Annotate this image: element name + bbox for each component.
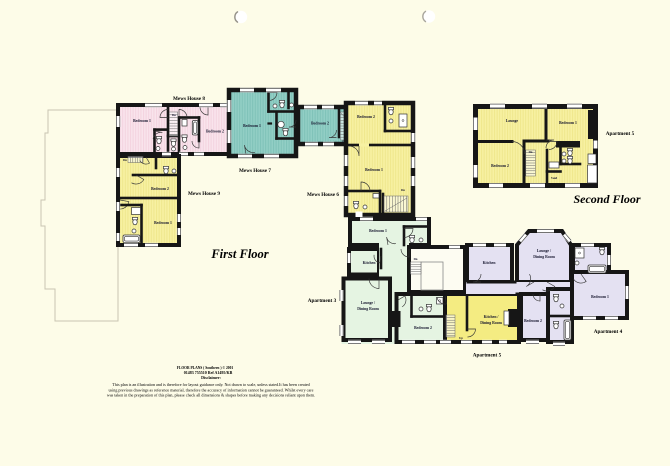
svg-text:Bedroom 2: Bedroom 2 (414, 326, 432, 330)
svg-text:Bedroom 2: Bedroom 2 (524, 319, 542, 323)
svg-text:Up: Up (459, 336, 463, 340)
svg-text:Apartment 5: Apartment 5 (473, 353, 502, 359)
svg-text:Apartment 3: Apartment 3 (308, 298, 337, 304)
svg-text:Mews House 7: Mews House 7 (239, 168, 271, 174)
svg-text:Apartment 5: Apartment 5 (606, 131, 635, 137)
svg-text:Apartment 4: Apartment 4 (594, 329, 623, 335)
svg-text:Bedroom 1: Bedroom 1 (133, 119, 151, 123)
svg-text:Dn: Dn (401, 188, 405, 192)
svg-text:Bedroom 1: Bedroom 1 (243, 124, 261, 128)
svg-text:Dining Room: Dining Room (357, 307, 379, 311)
svg-text:Bedroom 2: Bedroom 2 (311, 122, 329, 126)
svg-text:Kitchen: Kitchen (363, 261, 377, 265)
svg-text:First Floor: First Floor (210, 247, 268, 261)
svg-text:Bedroom 1: Bedroom 1 (559, 121, 577, 125)
svg-text:Bedroom 2: Bedroom 2 (357, 115, 375, 119)
svg-text:Bedroom 1: Bedroom 1 (369, 229, 387, 233)
svg-text:Void: Void (551, 176, 557, 180)
svg-text:Kitchen: Kitchen (483, 261, 497, 265)
svg-text:Dn: Dn (529, 150, 533, 154)
svg-text:Dn: Dn (172, 113, 176, 117)
svg-text:Bedroom 2: Bedroom 2 (206, 130, 224, 134)
svg-text:Lounge /: Lounge / (537, 249, 552, 253)
svg-text:Lounge: Lounge (506, 119, 519, 123)
svg-text:Second Floor: Second Floor (573, 192, 640, 206)
svg-text:Mews House 9: Mews House 9 (188, 191, 220, 197)
svg-text:Bedroom 1: Bedroom 1 (154, 221, 172, 225)
svg-text:Dn: Dn (414, 257, 418, 261)
svg-text:Bedroom 1: Bedroom 1 (365, 168, 383, 172)
svg-text:Mews House 6: Mews House 6 (307, 192, 339, 198)
svg-text:Dining Room: Dining Room (480, 321, 502, 325)
svg-text:Dining Room: Dining Room (533, 255, 555, 259)
svg-text:Kitchen /: Kitchen / (484, 315, 500, 319)
svg-text:Disclaimer:: Disclaimer: (201, 375, 221, 380)
svg-text:Bedroom 2: Bedroom 2 (491, 164, 509, 168)
svg-text:Lounge /: Lounge / (361, 301, 376, 305)
svg-text:Mews House 8: Mews House 8 (173, 96, 205, 102)
svg-text:Bedroom 2: Bedroom 2 (151, 187, 169, 191)
svg-text:Dn: Dn (123, 158, 127, 162)
svg-text:Bedroom 1: Bedroom 1 (591, 295, 609, 299)
